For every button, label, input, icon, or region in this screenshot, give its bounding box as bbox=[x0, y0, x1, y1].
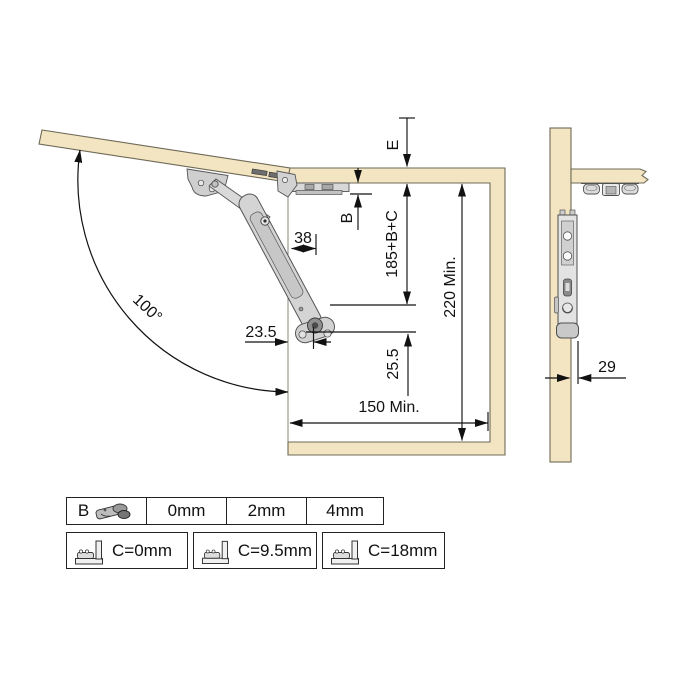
door-board bbox=[39, 130, 290, 182]
c-option-box-1: C=9.5mm bbox=[193, 532, 317, 569]
b-option-2mm: 2mm bbox=[226, 498, 306, 524]
dim-29-label: 29 bbox=[598, 359, 616, 376]
c-option-box-2: C=18mm bbox=[322, 532, 445, 569]
c-option-label: C=9.5mm bbox=[238, 541, 312, 561]
door-panel bbox=[39, 130, 290, 182]
b-value: 4mm bbox=[326, 501, 364, 521]
c-option-label: C=18mm bbox=[368, 541, 437, 561]
angle-label: 100° bbox=[129, 291, 165, 326]
b-table-label: B bbox=[78, 501, 89, 521]
page: 100° bbox=[0, 0, 700, 700]
dim-e-label: E bbox=[385, 140, 402, 151]
door-hinge bbox=[277, 171, 297, 197]
c-option-label: C=0mm bbox=[112, 541, 172, 561]
hinge-3d-icon bbox=[93, 499, 135, 523]
b-option-4mm: 4mm bbox=[306, 498, 383, 524]
dim-220-label: 220 Min. bbox=[442, 256, 459, 317]
side-view-channel bbox=[555, 210, 579, 338]
b-option-0mm: 0mm bbox=[146, 498, 226, 524]
side-view-rail bbox=[581, 184, 639, 196]
b-value: 0mm bbox=[168, 501, 206, 521]
top-rail bbox=[291, 183, 349, 195]
hinge-section-icon bbox=[201, 536, 232, 566]
top-panel-broken bbox=[571, 169, 648, 183]
opening-arc: 100° bbox=[78, 150, 288, 392]
hinge-section-icon bbox=[74, 536, 106, 566]
side-view: 29 bbox=[545, 128, 648, 462]
dim-38-label: 38 bbox=[294, 230, 312, 247]
arc-line bbox=[78, 150, 288, 392]
c-option-box-0: C=0mm bbox=[66, 532, 188, 569]
b-value: 2mm bbox=[248, 501, 286, 521]
hinge-section-icon bbox=[330, 536, 362, 566]
dim-23-label: 23.5 bbox=[245, 324, 276, 341]
technical-drawing-svg: 100° bbox=[0, 0, 700, 580]
lift-arm bbox=[236, 191, 325, 333]
b-options-table: B 0mm 2mm 4mm bbox=[66, 497, 384, 525]
b-table-header-cell: B bbox=[67, 498, 146, 524]
dim-150-label: 150 Min. bbox=[358, 399, 419, 416]
dim-25-label: 25.5 bbox=[385, 348, 402, 379]
dim-b-label: B bbox=[339, 213, 356, 224]
lift-mechanism bbox=[187, 169, 349, 345]
dim-185-label: 185+B+C bbox=[384, 210, 401, 278]
